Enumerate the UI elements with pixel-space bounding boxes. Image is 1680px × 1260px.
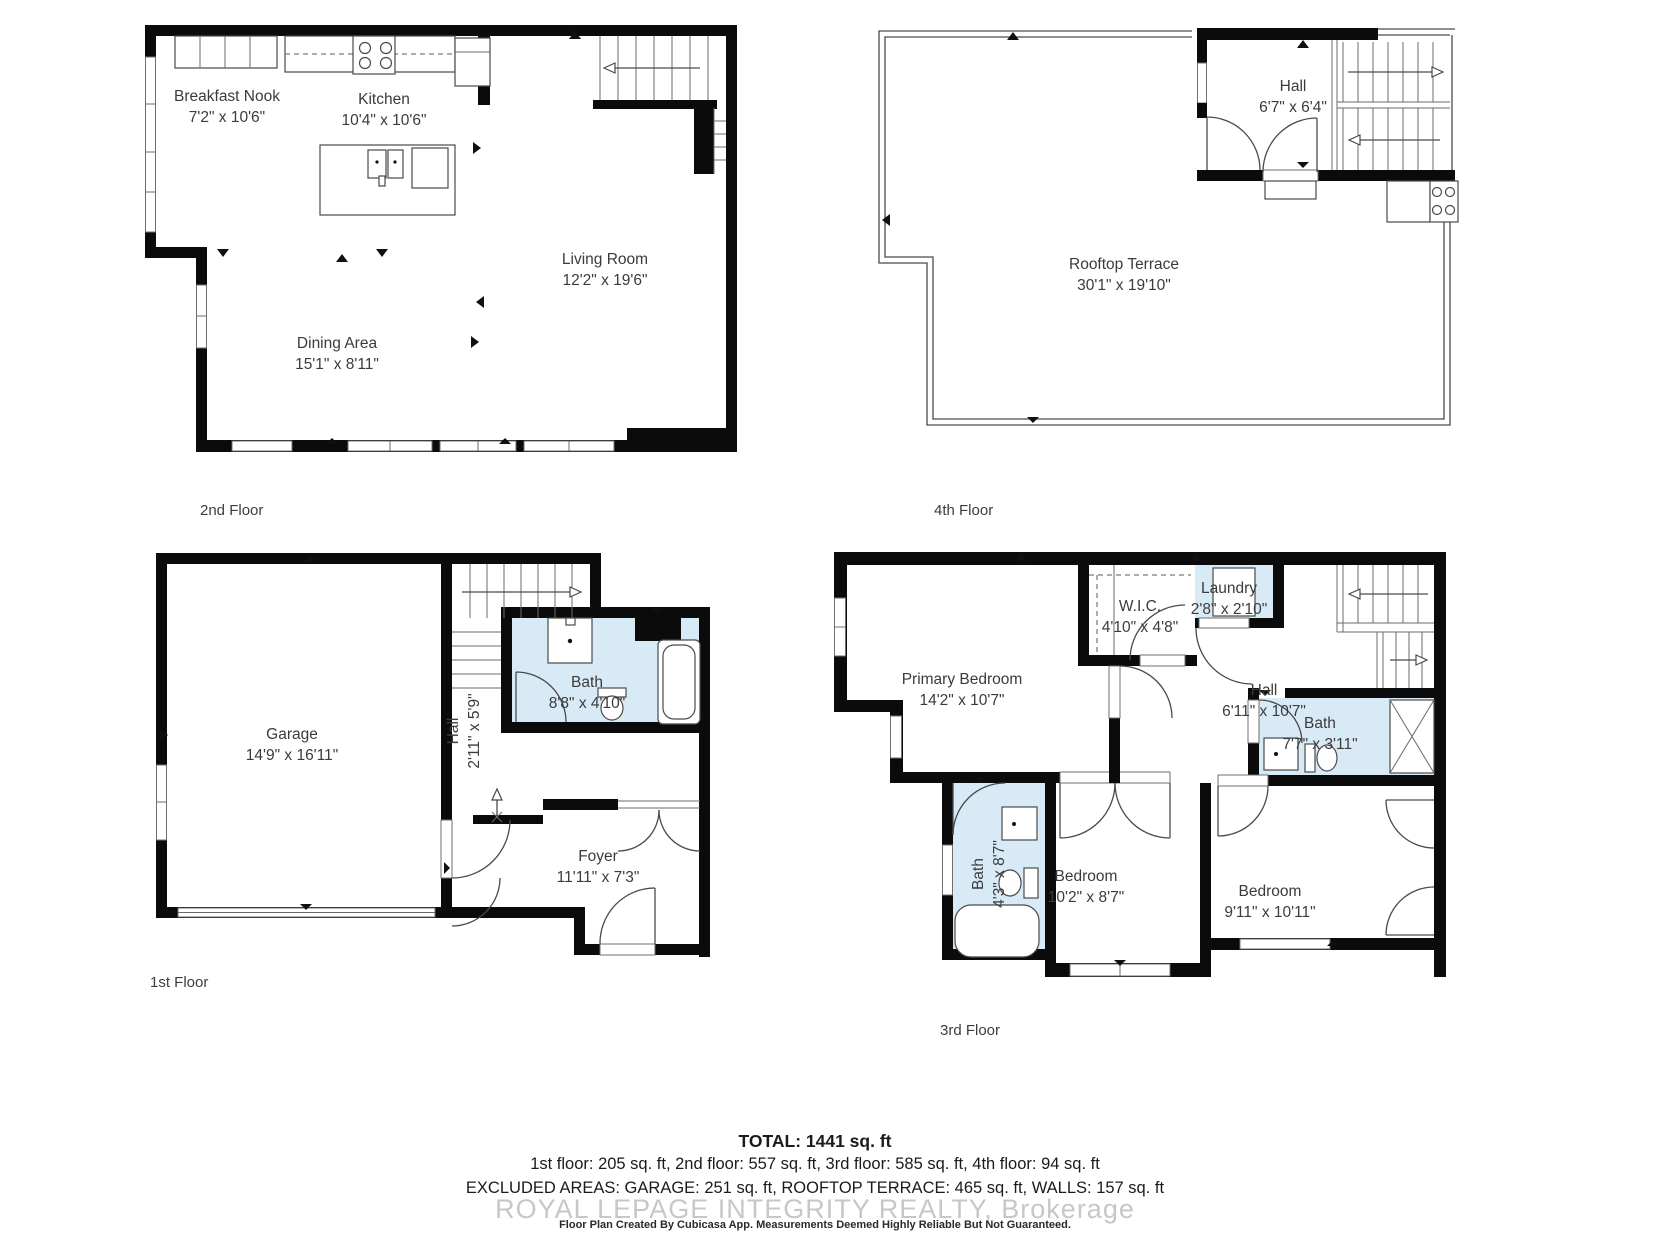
room-name: Breakfast Nook [174,86,280,107]
room-dims: 8'8" x 4'10" [549,693,625,714]
room-dims: 4'3" x 8'7" [989,840,1010,908]
room-name: Bath [549,672,625,693]
excluded-areas-text: EXCLUDED AREAS: GARAGE: 251 sq. ft, ROOF… [466,1179,1164,1198]
room-label-garage: Garage 14'9" x 16'11" [246,724,338,766]
room-dims: 4'10" x 4'8" [1102,617,1178,638]
room-name: Dining Area [295,333,379,354]
room-name: Hall [1259,76,1327,97]
room-label-dining-area: Dining Area 15'1" x 8'11" [295,333,379,375]
caption-2nd-floor: 2nd Floor [200,502,263,519]
room-label-bedroom-middle: Bedroom 10'2" x 8'7" [1048,866,1124,908]
floor-areas-text: 1st floor: 205 sq. ft, 2nd floor: 557 sq… [530,1155,1100,1174]
room-name: Bath [1282,713,1357,734]
caption-1st-floor: 1st Floor [150,974,208,991]
room-dims: 30'1" x 19'10" [1069,275,1179,296]
room-label-primary-bedroom: Primary Bedroom 14'2" x 10'7" [902,669,1023,711]
room-dims: 7'2" x 10'6" [174,107,280,128]
room-name: Hall [443,693,464,768]
room-dims: 7'7" x 3'11" [1282,734,1357,755]
room-label-kitchen: Kitchen 10'4" x 10'6" [341,89,426,131]
room-dims: 14'9" x 16'11" [246,745,338,766]
room-name: Kitchen [341,89,426,110]
room-name: Bath [968,840,989,908]
room-label-hall-4th: Hall 6'7" x 6'4" [1259,76,1327,118]
room-label-rooftop-terrace: Rooftop Terrace 30'1" x 19'10" [1069,254,1179,296]
room-label-wic: W.I.C. 4'10" x 4'8" [1102,596,1178,638]
room-name: Bedroom [1048,866,1124,887]
room-dims: 6'7" x 6'4" [1259,97,1327,118]
room-dims: 10'4" x 10'6" [341,110,426,131]
total-area-text: TOTAL: 1441 sq. ft [739,1131,892,1152]
room-name: Primary Bedroom [902,669,1023,690]
plan-4th-floor [879,28,1458,425]
room-dims: 2'11" x 5'9" [464,693,485,768]
room-name: Living Room [562,249,648,270]
caption-4th-floor: 4th Floor [934,502,993,519]
room-dims: 15'1" x 8'11" [295,354,379,375]
room-label-laundry: Laundry 2'8" x 2'10" [1191,578,1267,620]
room-dims: 10'2" x 8'7" [1048,887,1124,908]
room-name: Laundry [1191,578,1267,599]
room-name: Garage [246,724,338,745]
room-name: Rooftop Terrace [1069,254,1179,275]
room-name: W.I.C. [1102,596,1178,617]
room-dims: 11'11" x 7'3" [557,867,640,888]
room-label-foyer: Foyer 11'11" x 7'3" [557,846,640,888]
room-label-hall-1st: Hall 2'11" x 5'9" [443,693,485,768]
room-name: Foyer [557,846,640,867]
floorplan-drawing [0,0,1680,1260]
room-label-living-room: Living Room 12'2" x 19'6" [562,249,648,291]
caption-3rd-floor: 3rd Floor [940,1022,1000,1039]
floorplan-page: Breakfast Nook 7'2" x 10'6" Kitchen 10'4… [0,0,1680,1260]
room-label-bath-3rd-right: Bath 7'7" x 3'11" [1282,713,1357,755]
room-label-bath-1st: Bath 8'8" x 4'10" [549,672,625,714]
room-dims: 2'8" x 2'10" [1191,599,1267,620]
plan-1st-floor [156,553,710,957]
room-dims: 12'2" x 19'6" [562,270,648,291]
room-dims: 9'11" x 10'11" [1224,902,1315,923]
room-label-breakfast-nook: Breakfast Nook 7'2" x 10'6" [174,86,280,128]
room-name: Hall [1222,680,1306,701]
room-label-bath-3rd-left: Bath 4'3" x 8'7" [968,840,1010,908]
room-name: Bedroom [1224,881,1315,902]
disclaimer-text: Floor Plan Created By Cubicasa App. Meas… [559,1219,1071,1231]
room-label-bedroom-right: Bedroom 9'11" x 10'11" [1224,881,1315,923]
room-dims: 14'2" x 10'7" [902,690,1023,711]
